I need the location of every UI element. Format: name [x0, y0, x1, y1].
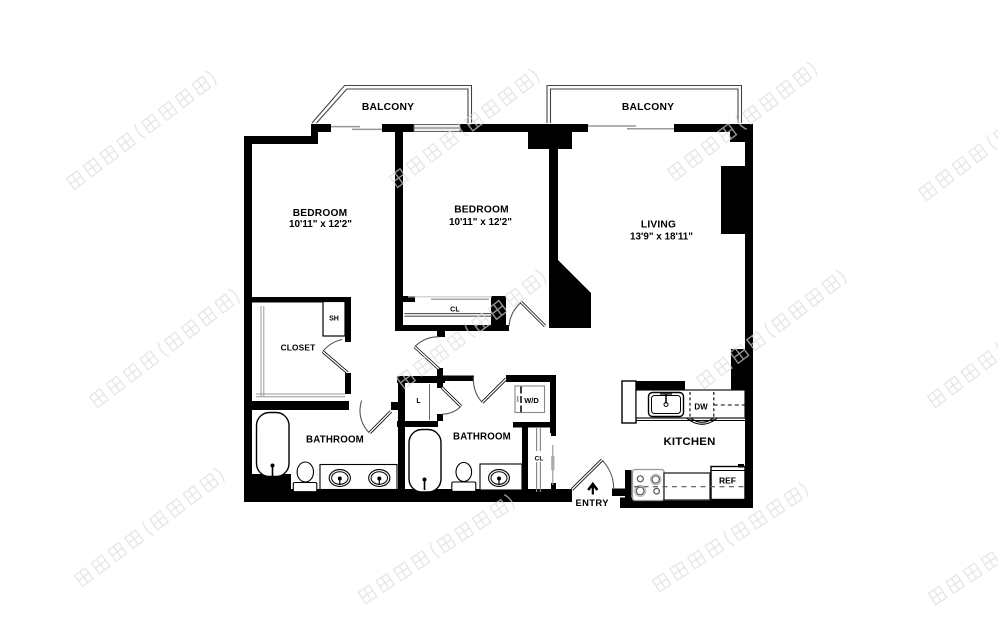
svg-text:10'11" x 12'2": 10'11" x 12'2" [289, 219, 352, 230]
svg-text:L: L [416, 398, 421, 405]
svg-text:BATHROOM: BATHROOM [453, 432, 511, 443]
svg-text:BALCONY: BALCONY [622, 102, 674, 113]
svg-text:KITCHEN: KITCHEN [663, 436, 715, 448]
svg-text:BATHROOM: BATHROOM [306, 435, 364, 446]
svg-text:BEDROOM: BEDROOM [293, 208, 348, 219]
svg-text:CLOSET: CLOSET [281, 343, 316, 353]
svg-text:BEDROOM: BEDROOM [454, 205, 509, 216]
svg-text:BALCONY: BALCONY [362, 102, 414, 113]
svg-text:REF: REF [719, 476, 736, 486]
svg-text:DW: DW [694, 403, 708, 412]
svg-text:LIVING: LIVING [641, 220, 676, 231]
svg-text:10'11" x 12'2": 10'11" x 12'2" [449, 217, 512, 228]
svg-text:W/D: W/D [524, 396, 539, 405]
svg-text:CL: CL [535, 456, 544, 463]
svg-text:ENTRY: ENTRY [575, 497, 609, 508]
svg-text:13'9" x 18'11": 13'9" x 18'11" [630, 232, 693, 243]
svg-text:CL: CL [450, 307, 460, 314]
svg-text:SH: SH [329, 316, 339, 323]
